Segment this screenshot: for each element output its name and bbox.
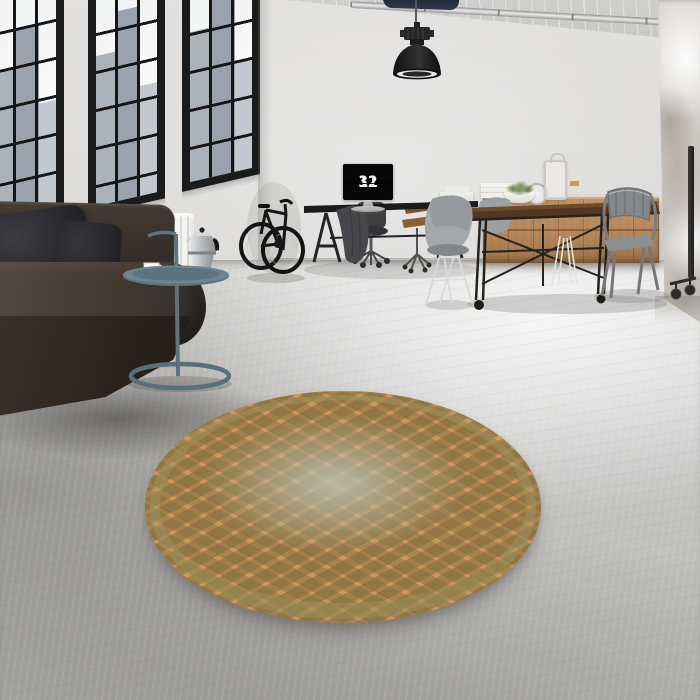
table-top-hook bbox=[148, 232, 176, 236]
flip-clock-seam bbox=[347, 183, 389, 184]
clock-minutes: 32 bbox=[358, 174, 377, 190]
loft-room-photo: 11 32 bbox=[0, 0, 700, 700]
pendant-lamp bbox=[390, 22, 444, 88]
tolix-armchair bbox=[602, 188, 658, 298]
window-2 bbox=[88, 0, 165, 216]
rug-border-ring bbox=[150, 395, 536, 619]
shell-chair bbox=[418, 193, 480, 311]
saddle bbox=[258, 204, 270, 208]
monitor-flip-clock: 11 32 bbox=[343, 164, 393, 200]
eiffel-legs bbox=[426, 255, 472, 305]
dining-group bbox=[452, 178, 700, 318]
moka-pot bbox=[186, 227, 219, 272]
crank bbox=[274, 240, 282, 248]
rolling-rack-casters bbox=[666, 270, 700, 302]
rolling-rack-pole bbox=[688, 146, 694, 278]
side-table bbox=[116, 224, 241, 396]
monitor-stand-base bbox=[351, 206, 385, 212]
bicycle bbox=[236, 170, 306, 286]
window-3 bbox=[182, 0, 260, 192]
window-1 bbox=[0, 0, 64, 234]
table-pole bbox=[176, 234, 178, 376]
